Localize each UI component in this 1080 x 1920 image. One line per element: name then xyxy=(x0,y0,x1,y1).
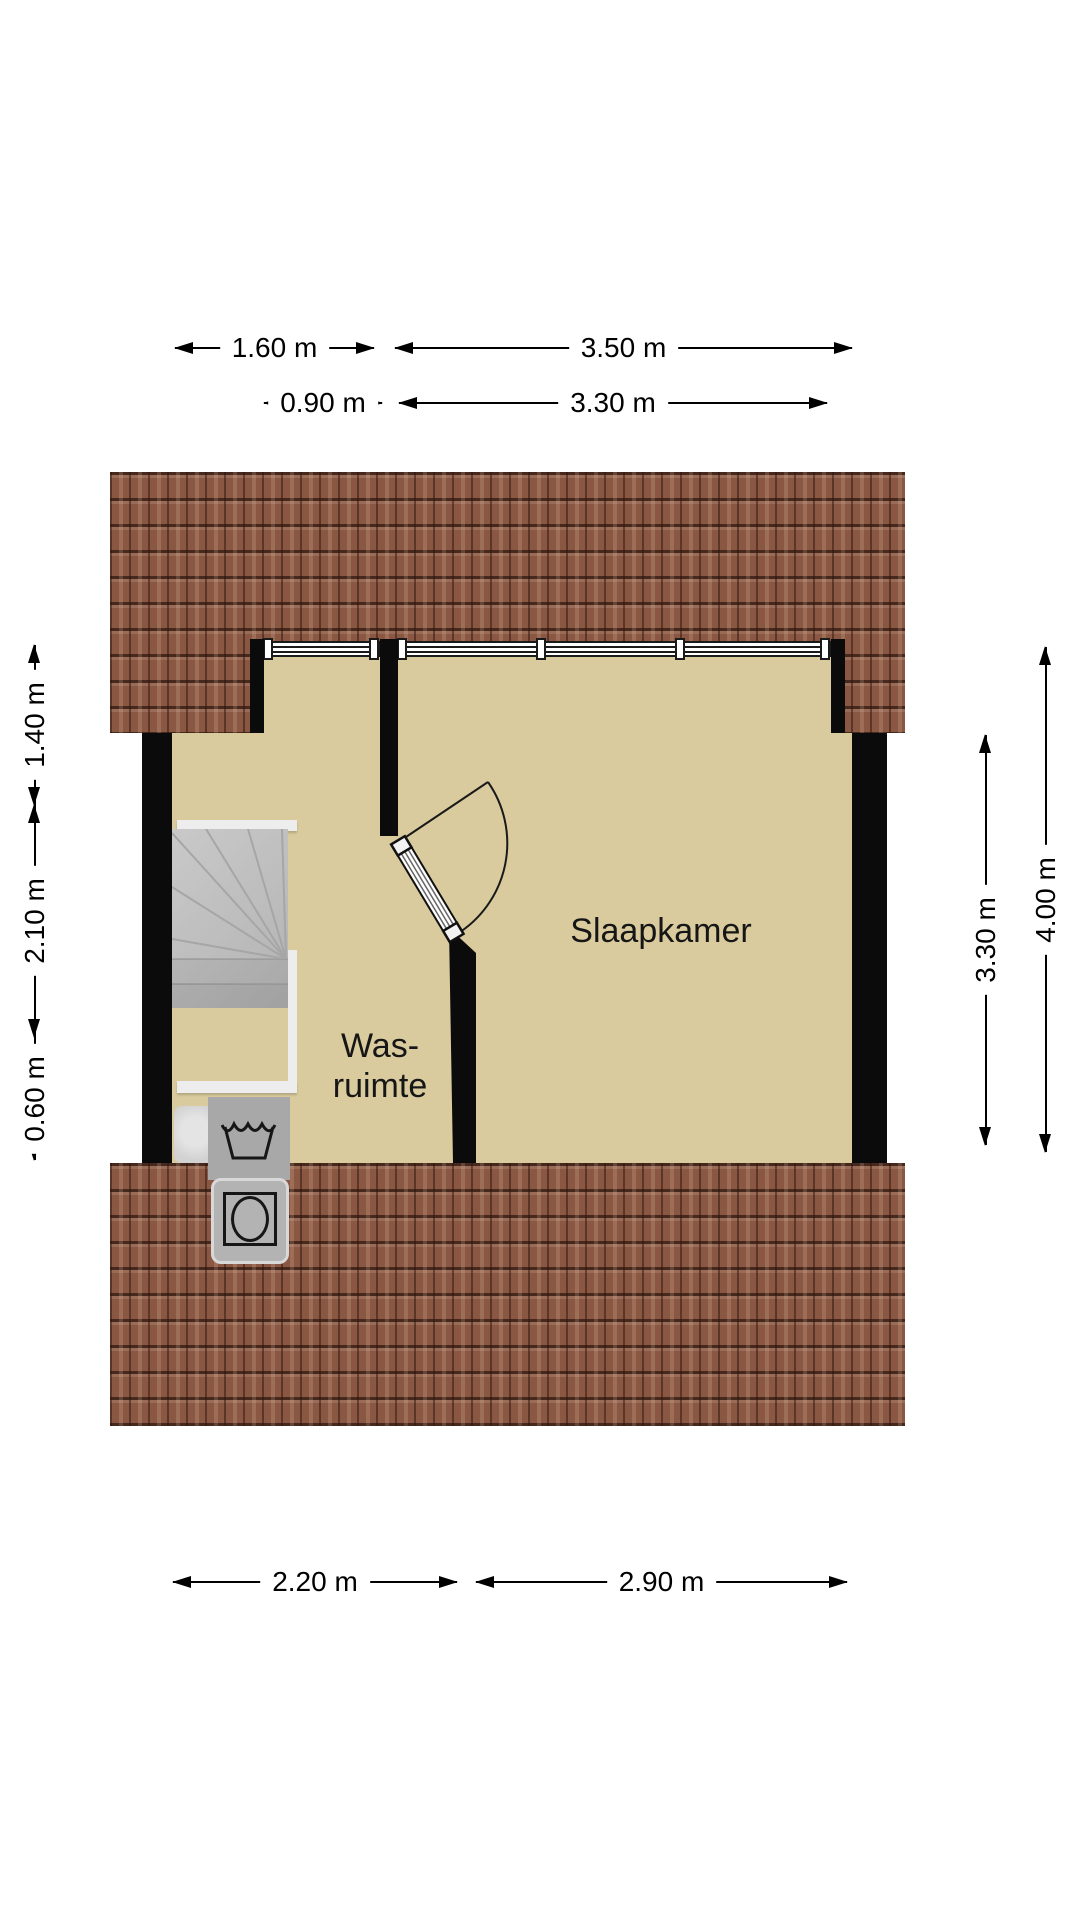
arrow-left-icon xyxy=(174,342,193,354)
door-swing-arc xyxy=(457,782,507,934)
arrow-right-icon xyxy=(439,1576,458,1588)
arrow-left-icon xyxy=(172,1576,191,1588)
arrow-left-icon xyxy=(394,342,413,354)
arrow-right-icon xyxy=(809,397,828,409)
arrow-up-icon xyxy=(1039,646,1051,665)
dimension-label: 0.90 m xyxy=(268,387,378,419)
dimension-label: 4.00 m xyxy=(1030,845,1062,955)
room-label-wasruimte-line1: Was- xyxy=(333,1026,427,1066)
dimension-label: 1.60 m xyxy=(220,332,330,364)
arrow-right-icon xyxy=(834,342,853,354)
arrow-right-icon xyxy=(829,1576,848,1588)
dimension-label: 0.60 m xyxy=(19,1044,51,1154)
door-leaf-icon xyxy=(391,836,463,942)
interior-wall-lower xyxy=(449,928,476,1163)
arrow-left-icon xyxy=(475,1576,494,1588)
dimension-label: 2.20 m xyxy=(260,1566,370,1598)
room-label-wasruimte-line2: ruimte xyxy=(333,1066,427,1106)
arrow-down-icon xyxy=(979,1127,991,1146)
room-label-slaapkamer: Slaapkamer xyxy=(570,911,751,951)
dimension-label: 3.50 m xyxy=(569,332,679,364)
dimension-label: 3.30 m xyxy=(970,885,1002,995)
dimension-label: 1.40 m xyxy=(19,670,51,780)
dimension-label: 2.10 m xyxy=(19,866,51,976)
door-swing-line xyxy=(400,782,488,841)
door-and-wall-layer xyxy=(0,0,1080,1920)
arrow-up-icon xyxy=(28,644,40,663)
dimension-label: 2.90 m xyxy=(607,1566,717,1598)
arrow-left-icon xyxy=(398,397,417,409)
arrow-down-icon xyxy=(1039,1134,1051,1153)
dimension-label: 3.30 m xyxy=(558,387,668,419)
arrow-right-icon xyxy=(356,342,375,354)
floorplan-canvas: Slaapkamer Was- ruimte 1.60 m 3.50 m 0.9… xyxy=(0,0,1080,1920)
arrow-up-icon xyxy=(979,734,991,753)
arrow-down-icon xyxy=(28,1019,40,1038)
room-label-wasruimte: Was- ruimte xyxy=(333,1026,427,1106)
arrow-up-icon xyxy=(28,804,40,823)
